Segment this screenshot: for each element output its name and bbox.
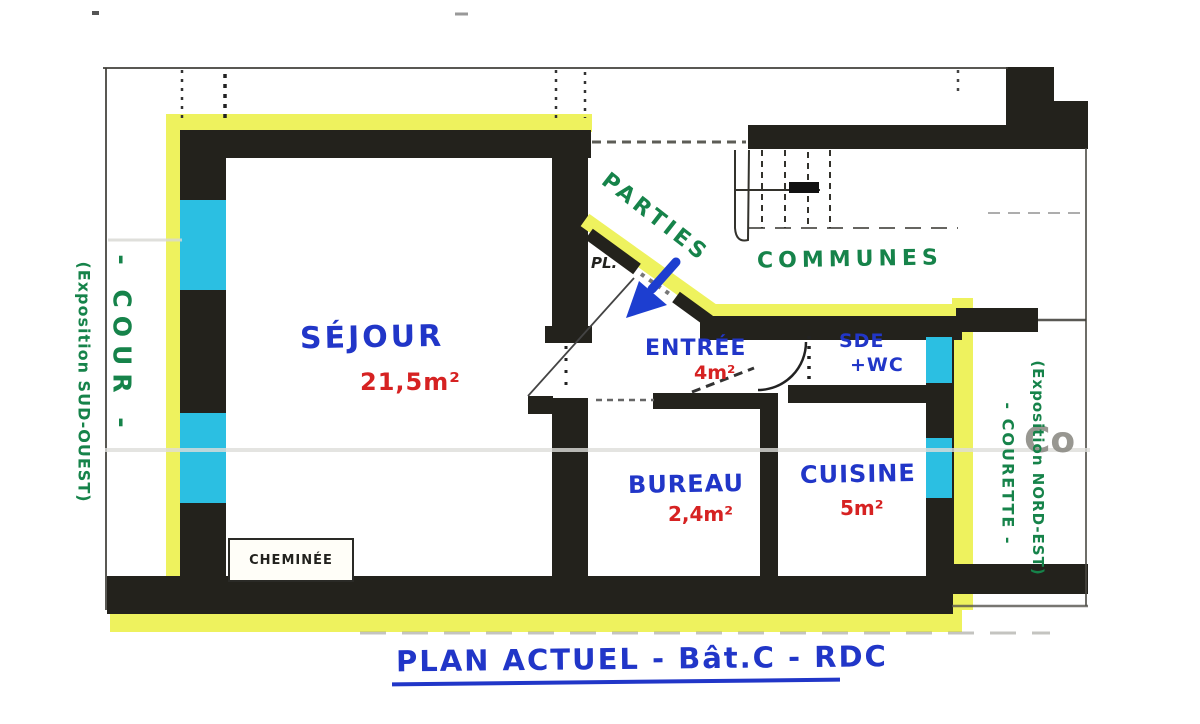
cuisine-area: 5m² <box>840 496 884 520</box>
window-cuisine-east <box>926 438 952 498</box>
left-area-label: - COUR - <box>108 254 137 435</box>
bureau-name: BUREAU <box>628 469 744 499</box>
scanned-floor-plan: CHEMINÉE <box>0 0 1200 724</box>
wall-mid-upper <box>552 130 588 328</box>
sde-name: SDE <box>839 330 884 352</box>
window-sde-east <box>926 337 952 383</box>
wall-step-lower <box>1054 101 1088 149</box>
bureau-area: 2,4m² <box>668 502 733 526</box>
right-exposure-label: (Exposition NORD-EST) <box>1029 360 1047 575</box>
sejour-area: 21,5m² <box>360 368 461 396</box>
common-word1: PARTIES <box>597 168 714 267</box>
plan-title: PLAN ACTUEL - Bât.C - RDC <box>396 640 842 679</box>
sde-door-arc <box>758 342 806 390</box>
sde-name2: +WC <box>850 354 904 376</box>
cuisine-name: CUISINE <box>800 459 916 489</box>
wall-mid-cap <box>545 326 592 343</box>
fireplace-label: CHEMINÉE <box>249 553 333 568</box>
sejour-name: SÉJOUR <box>300 319 445 357</box>
entree-name: ENTRÉE <box>645 336 746 361</box>
window-sejour-lower <box>180 413 226 503</box>
entrance-arrow-icon <box>626 262 676 318</box>
wall-entree-south <box>653 393 777 409</box>
wall-bureau-cuisine <box>760 393 778 579</box>
wall-corridor-south-right <box>956 308 1038 332</box>
wall-step-upper <box>1006 67 1054 129</box>
common-word2: COMMUNES <box>757 245 943 273</box>
plan-title-underline <box>392 678 840 687</box>
wall-south-courette <box>952 564 1088 594</box>
left-exposure-label: (Exposition SUD-OUEST) <box>75 261 94 502</box>
fireplace-box: CHEMINÉE <box>228 538 354 582</box>
wall-mid-lower <box>552 398 588 578</box>
right-area-label: - COURETTE - <box>999 402 1018 545</box>
entree-area: 4m² <box>694 362 735 384</box>
staircase <box>735 150 958 241</box>
wall-sde-south <box>788 385 936 403</box>
entrance-door-opening <box>641 274 671 295</box>
wall-mid-stub <box>528 396 553 414</box>
window-sejour-upper <box>180 200 226 290</box>
closet-label: PL. <box>591 254 617 272</box>
wall-sejour-north <box>203 130 591 158</box>
